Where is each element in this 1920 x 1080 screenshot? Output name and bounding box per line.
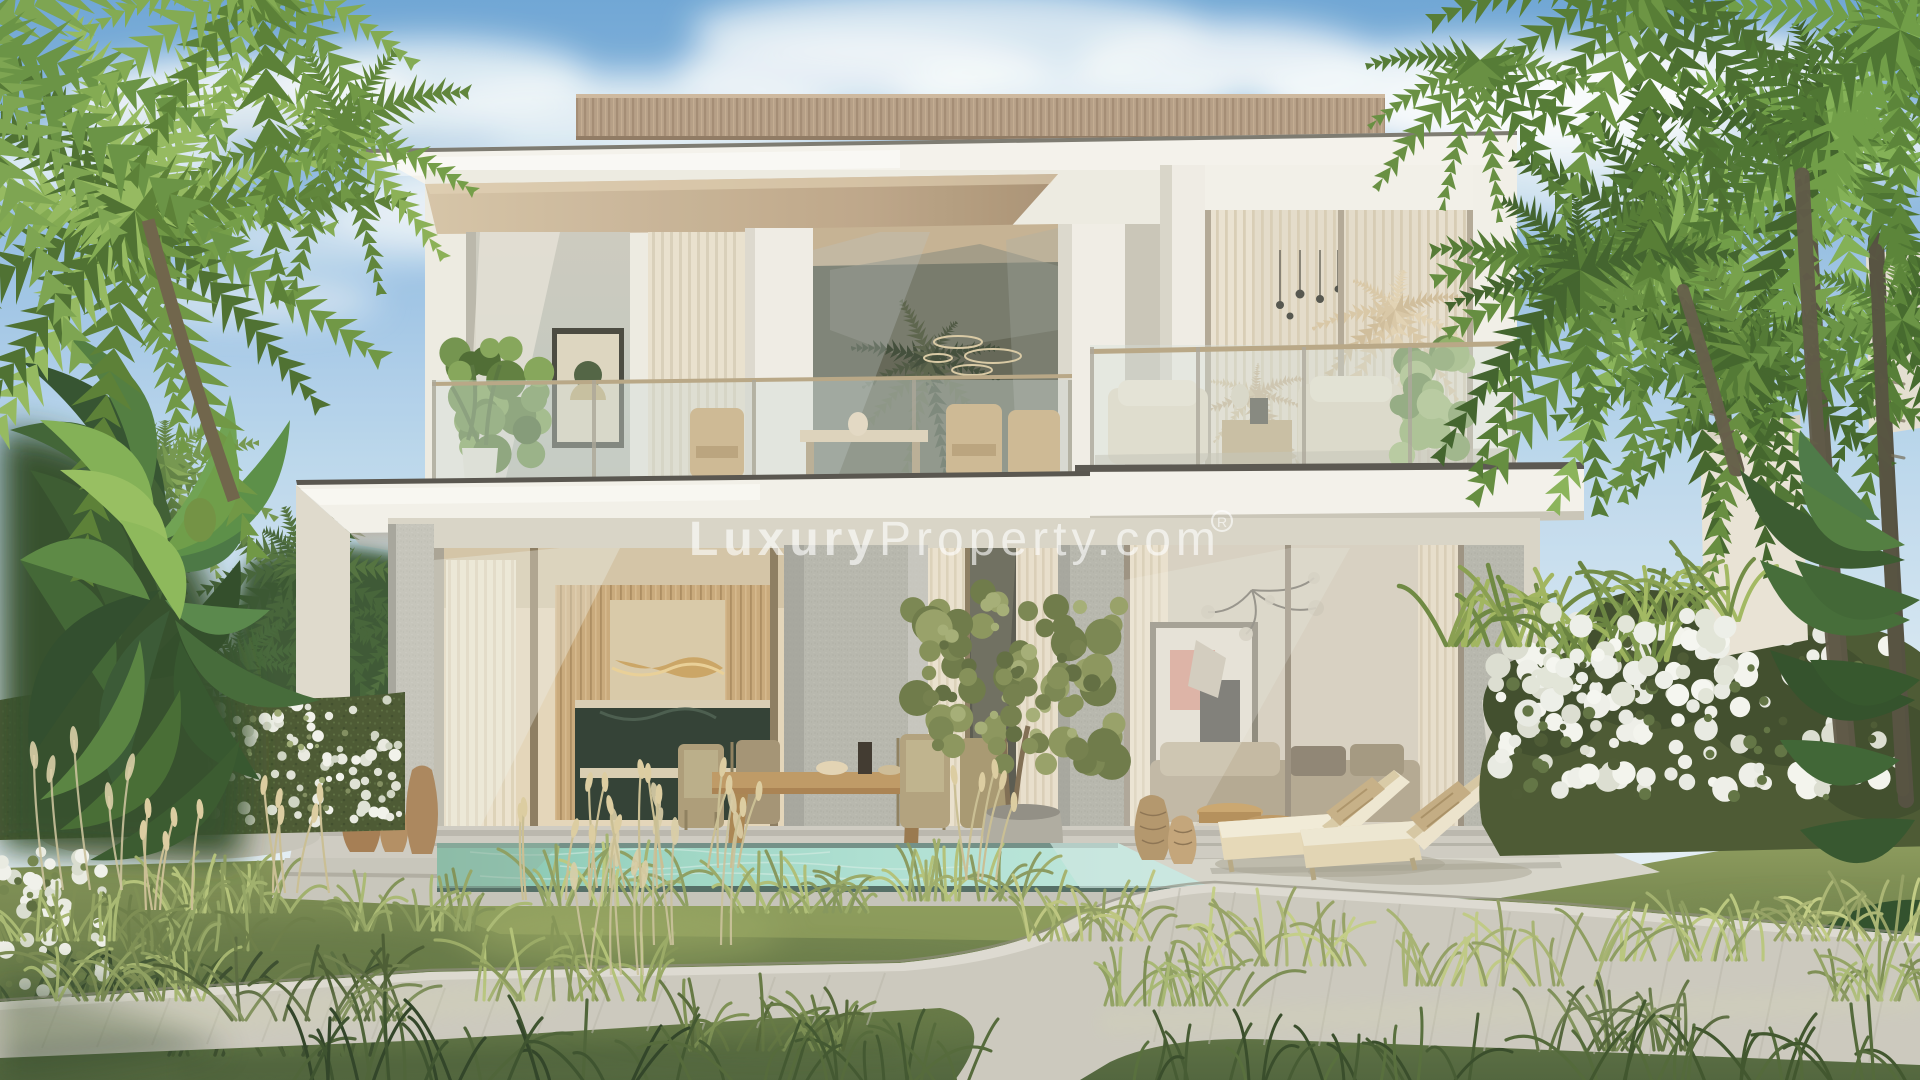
- svg-text:R: R: [1217, 514, 1227, 530]
- svg-text:LuxuryProperty.com: LuxuryProperty.com: [689, 513, 1221, 566]
